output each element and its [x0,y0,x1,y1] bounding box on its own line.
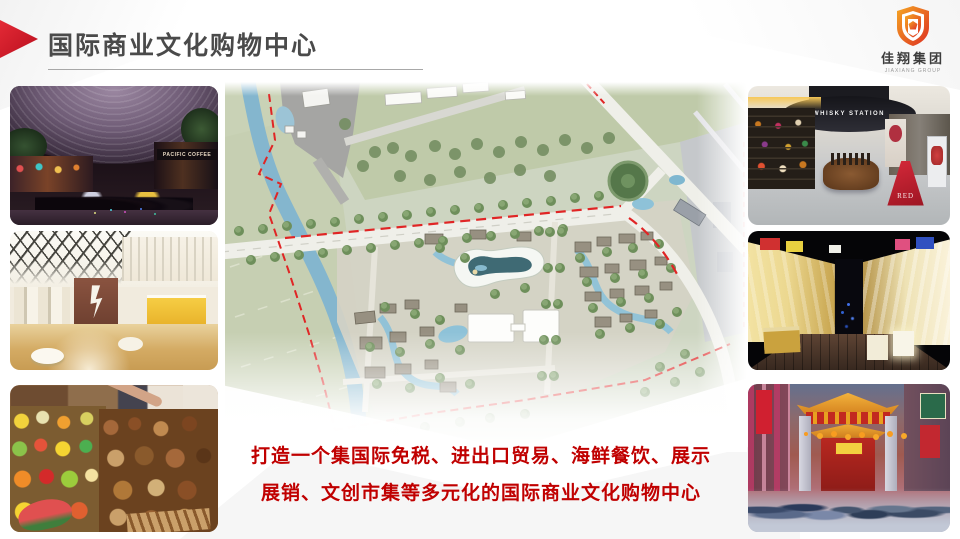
description-line-2: 展销、文创市集等多元化的国际商业文化购物中心 [225,475,737,512]
dark-alley-center [835,259,863,342]
gate-ornate-band [806,412,890,424]
shop-sign-red [760,238,780,251]
slide: 国际商业文化购物中心 佳翔集团 JIAXIANG GROUP PACIFIC C… [0,0,960,539]
photo-mall-lobby [10,231,218,370]
standing-lightbox-sign [927,136,947,188]
lantern-row [804,432,808,436]
lit-shops-right [861,239,950,345]
logo-name-en: JIAXIANG GROUP [863,68,960,74]
photo-temple-gate-street [748,384,950,532]
photo-food-market [10,385,218,532]
shop-sign-white [829,245,841,253]
gate-roof-middle [810,424,886,438]
title-underline [48,69,423,70]
red-sign-right [920,425,940,458]
street-crowd [748,488,950,532]
lobby-pillars [14,287,70,325]
lit-shops-left [748,242,835,342]
street-floor [10,210,218,225]
ceiling-slats [122,237,218,281]
photo-night-shopping-street: PACIFIC COFFEE [10,86,218,225]
goods-stall [764,330,801,354]
lattice-ceiling-pattern [10,231,131,284]
logo-name-cn: 佳翔集团 [863,48,960,67]
whisky-station-sign-text: WHISKY STATION [813,111,885,117]
red-promo-stand-label: RED [897,192,914,200]
company-logo: 佳翔集团 JIAXIANG GROUP [863,5,960,74]
neon-lights [110,209,112,211]
slide-description: 打造一个集国际免税、进出口贸易、海鲜餐饮、展示 展销、文创市集等多元化的国际商业… [225,438,737,512]
gate-pillar-right [885,416,897,490]
storefronts-right: PACIFIC COFFEE [154,142,218,189]
shop-sign-pink [895,239,909,250]
gate-plaque [835,442,864,456]
wooden-tasting-island [823,158,880,190]
logo-shield-icon [894,5,932,47]
description-line-1: 打造一个集国际免税、进出口贸易、海鲜餐饮、展示 [225,438,737,475]
map-fade-bottom [225,332,747,452]
page-title: 国际商业文化购物中心 [48,26,318,62]
temple-gate [792,393,903,491]
map-fade-top [225,82,747,96]
floor-sheen [47,328,130,370]
gate-pillar-left [799,416,811,490]
shop-sign-blue [916,237,934,250]
red-banner-left [756,390,772,434]
glowing-display-boxes [893,331,913,356]
map-circular-plaza [609,162,647,200]
white-stool-small [118,337,143,351]
shop-sign-yellow [786,241,802,252]
storefronts-left [10,156,93,192]
coffee-shop-sign: PACIFIC COFFEE [157,149,216,160]
photo-duty-free-whisky-shop: WHISKY STATION RED [748,86,950,225]
gate-roof-top [797,393,899,414]
bottle-shelves [748,108,815,189]
wafer-stack [126,509,210,532]
green-street-sign [920,393,946,419]
feature-wall [74,278,118,325]
map-fade-right [697,82,747,452]
yellow-kiosk [147,298,205,324]
photo-night-market-street [748,231,950,370]
wall-logo-sculpture [90,285,105,318]
poster-red-graphic [889,125,901,142]
